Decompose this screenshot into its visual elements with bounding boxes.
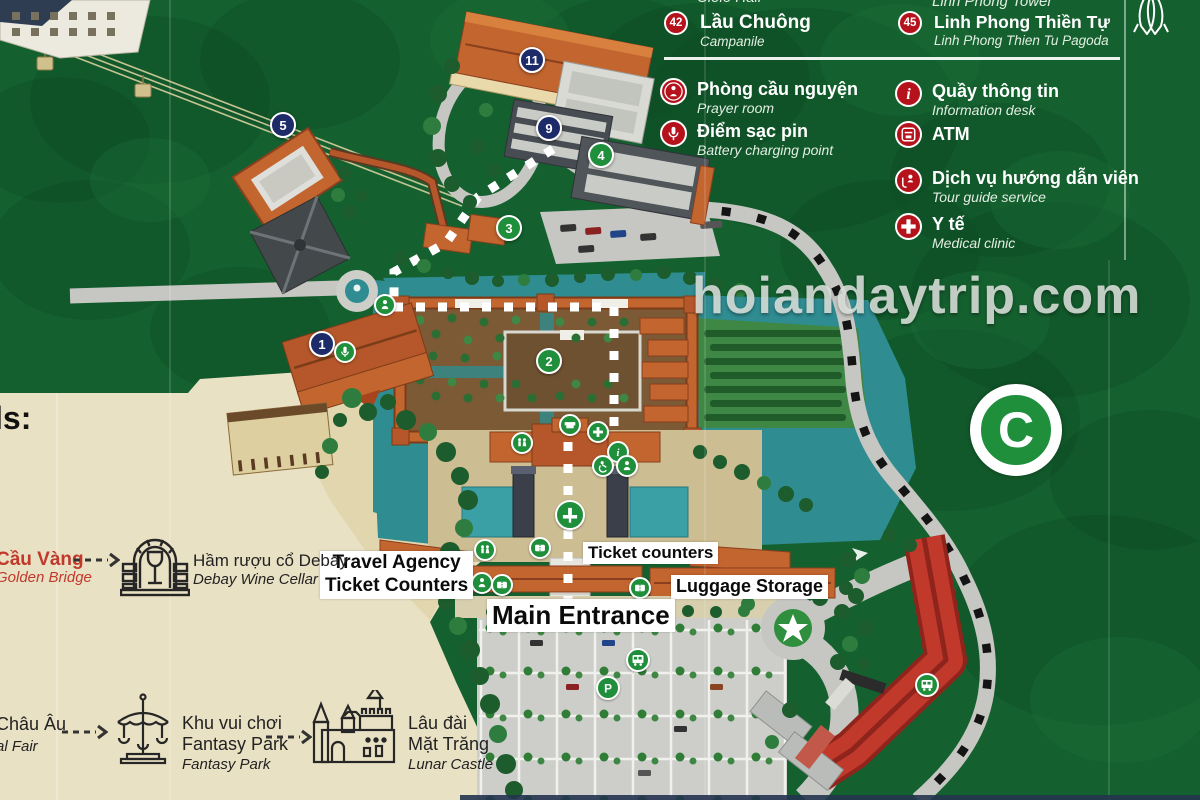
luggage-storage-label: Luggage Storage: [671, 575, 828, 599]
map-marker-9: 9: [536, 115, 562, 141]
map-marker-1: 1: [309, 331, 335, 357]
carnival-vi-partial: Châu Âu: [0, 714, 66, 735]
prayer-room-icon: [660, 78, 687, 105]
shuttle-stop-icon: [915, 673, 939, 697]
legend-separator: [664, 57, 1120, 60]
lunar-castle-vi2: Mặt Trăng: [408, 734, 489, 755]
medical-en: Medical clinic: [932, 235, 1015, 251]
watermark: hoiandaytrip.com: [692, 266, 1141, 326]
lunar-castle-en: Lunar Castle: [408, 756, 493, 773]
legend-42-vi: Lầu Chuông: [700, 12, 811, 34]
guide-point-icon: [374, 294, 396, 316]
first-aid-icon: [587, 421, 609, 443]
tour-guide-vi: Dịch vụ hướng dẫn viên: [932, 168, 1139, 189]
restroom-icon: [474, 539, 496, 561]
map-bottom-edge: [460, 795, 1200, 800]
dashed-arrow-icon: [62, 724, 108, 740]
information-icon: i: [895, 80, 922, 107]
ticket-booth-icon: [491, 574, 513, 596]
ticket-counters-label: Ticket counters: [583, 542, 718, 564]
map-marker-3: 3: [496, 215, 522, 241]
wheelchair-access-icon: [592, 455, 614, 477]
service-point-icon: [559, 414, 581, 436]
legend-marker-45: 45: [898, 11, 922, 35]
bus-stop-icon: [626, 648, 650, 672]
wine-cellar-vi: Hầm rượu cổ Debay: [193, 551, 348, 571]
colonnade-building: [227, 403, 333, 475]
tour-guide-icon: [895, 167, 922, 194]
restroom-icon: [511, 432, 533, 454]
battery-charging-icon: [660, 120, 687, 147]
information-en: Information desk: [932, 102, 1036, 118]
lunar-castle-vi1: Lâu đài: [408, 713, 467, 734]
golden-bridge-en: Golden Bridge: [0, 569, 92, 586]
atm-vi: ATM: [932, 124, 970, 145]
battery-charging-en: Battery charging point: [697, 142, 833, 158]
legend-heading-partial: ls:: [0, 400, 31, 437]
legend-cut-text-right: Linh Phong Tower: [932, 0, 1052, 10]
map-marker-11: 11: [519, 47, 545, 73]
legend-45-vi: Linh Phong Thiền Tự: [934, 12, 1110, 33]
carousel-icon: [110, 692, 176, 768]
map-marker-5: 5: [270, 112, 296, 138]
roundabout: [761, 596, 825, 660]
svg-text:i: i: [906, 85, 911, 103]
map-marker-4: 4: [588, 142, 614, 168]
information-vi: Quầy thông tin: [932, 81, 1059, 102]
ticket-booth-icon: [529, 537, 551, 559]
prayer-room-en: Prayer room: [697, 100, 774, 116]
golden-bridge-vi: Cầu Vàng: [0, 549, 84, 571]
zone-c-badge: C: [970, 384, 1062, 476]
assistance-point-icon: [616, 455, 638, 477]
wine-cellar-en: Debay Wine Cellar: [193, 571, 318, 588]
main-entrance-label: Main Entrance: [487, 599, 675, 632]
parking-icon: P: [596, 676, 620, 700]
medical-icon: [895, 213, 922, 240]
svg-text:P: P: [604, 682, 612, 696]
tour-guide-en: Tour guide service: [932, 189, 1046, 205]
carnival-en-partial: al Fair: [0, 738, 38, 755]
praying-hands-icon: [1124, 0, 1178, 48]
legend-45-en: Linh Phong Thien Tu Pagoda: [934, 33, 1109, 48]
fantasy-park-en: Fantasy Park: [182, 756, 270, 773]
charging-station-icon: [555, 500, 585, 530]
legend-cut-text-left: Cielo Hall: [697, 0, 761, 6]
atm-icon: [895, 121, 922, 148]
parking-lot: [477, 618, 787, 800]
legend-marker-42: 42: [664, 11, 688, 35]
map-marker-2: 2: [536, 348, 562, 374]
battery-charging-icon: [334, 341, 356, 363]
luggage-booth-icon: [629, 577, 651, 599]
bana-hills-tourist-map[interactable]: hoiandaytrip.com C Cielo Hall Linh Phong…: [0, 0, 1200, 800]
battery-charging-vi: Điểm sạc pin: [697, 121, 808, 142]
dashed-arrow-icon: [74, 552, 120, 568]
medical-vi: Y tế: [932, 214, 965, 235]
dashed-arrow-icon: [266, 729, 312, 745]
wine-cellar-icon: [120, 526, 190, 600]
legend-42-en: Campanile: [700, 34, 765, 49]
zone-c-label: C: [998, 401, 1034, 459]
guide-point-icon: [471, 572, 493, 594]
lunar-castle-icon: [312, 690, 404, 770]
prayer-room-vi: Phòng cầu nguyện: [697, 79, 858, 100]
